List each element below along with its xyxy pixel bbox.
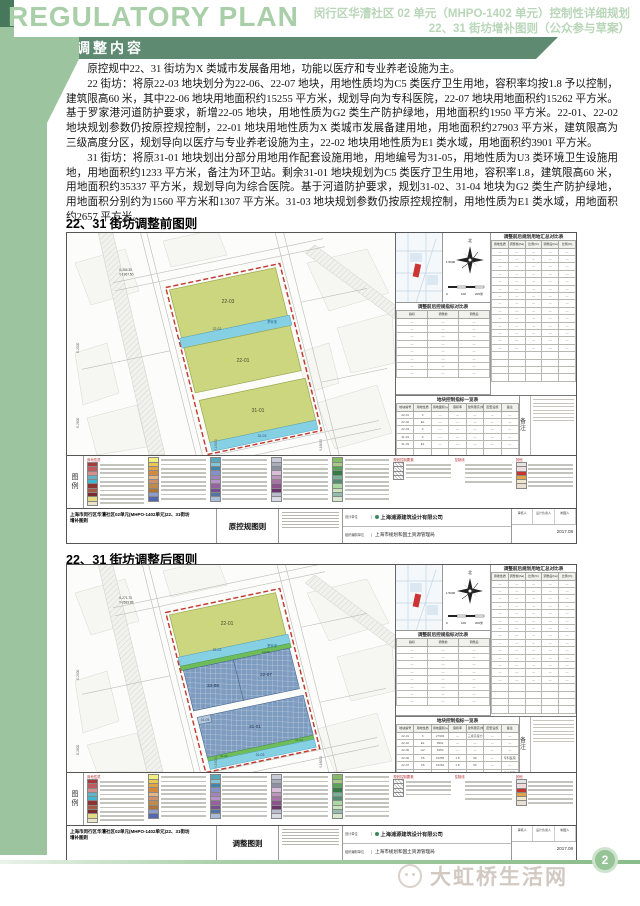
compass-box: 北 1:5000 — [443, 233, 490, 302]
legend-column: 用地性质 — [87, 458, 144, 506]
legend-column: 控制线 — [455, 775, 512, 823]
legend-column: 其他 — [516, 458, 573, 506]
label-parcel-e: 31-03 — [258, 434, 267, 438]
plan-map-before: 22-03 22-02 罗家港 22-01 31-01 31-03 X-264.… — [67, 233, 395, 455]
map-and-panel: 22-01 22-02 罗家港 22-05 22-06 22-07 31-01 … — [67, 565, 576, 772]
watermark-text: 大虹桥生活网 — [430, 861, 568, 891]
design-firm: 上海浦源建筑设计有限公司 — [372, 831, 511, 838]
legend-swatch-icon — [87, 501, 98, 506]
design-firm: 上海浦源建筑设计有限公司 — [372, 514, 511, 521]
legend-columns: 用地性质规划控制要素控制线其他 — [84, 773, 576, 825]
grid-tick: E-2500 — [76, 669, 80, 680]
org-name: 上海市规划和国土资源管理局 — [372, 849, 511, 855]
label-parcel-a: 22-01 — [221, 621, 234, 627]
org-unit-label: 组织编制单位 — [343, 533, 372, 537]
coord-label-y: Y-1967.50 — [119, 273, 134, 277]
label-parcel-k: 31-02 — [220, 754, 228, 758]
legend-column — [271, 458, 328, 506]
legend-column — [210, 458, 267, 506]
legend-swatch-icon — [271, 496, 282, 501]
river-name-label: 罗家港 — [267, 643, 277, 648]
titleblock-units: 设计单位 上海浦源建筑设计有限公司 组织编制单位 上海市规划和国土资源管理局 — [343, 509, 512, 543]
legend-columns: 用地性质规划控制要素控制线其他 — [84, 456, 576, 508]
north-arrow-icon: 北 1:5000 — [443, 233, 490, 303]
legend-swatch-icon — [393, 792, 404, 797]
label-parcel-j: 31-05 — [201, 718, 210, 722]
sheet-name: 原控规图则 — [217, 509, 279, 543]
compass-box: 北 1:5000 — [443, 565, 490, 630]
subtitle-line-2: 22、31 街坊增补图则（公众参与草案） — [314, 22, 630, 37]
notes-box: 备注 — [519, 717, 576, 772]
coord-label-y: Y-2683.89 — [119, 601, 134, 605]
svg-text:北: 北 — [468, 237, 472, 243]
notes-box: 备注 — [519, 396, 576, 455]
label-parcel-a: 22-03 — [222, 299, 235, 305]
coord-label-x: X-264.35 — [119, 268, 132, 272]
legend-label: 图例 — [67, 773, 84, 825]
titleblock-date: 2017.08 — [512, 842, 576, 861]
map-legend: 图例 用地性质规划控制要素控制线其他 — [67, 455, 576, 508]
locator-and-compass: 北 1:5000 — [396, 233, 490, 303]
mini-table: 调整前后规划用地汇总对比表用地性质调整前(ha)比例(%)调整后(ha)比例(%… — [491, 233, 576, 382]
scale-bar-icon: 0 100 200米 — [446, 286, 484, 296]
title-block: 上海市闵行区华漕社区02单元(MHPO-1402单元)22、31街坊 增补图则 … — [67, 508, 576, 543]
coord-label-x: X-271.70 — [119, 596, 132, 600]
grid-tick: Y-15000 — [214, 756, 218, 768]
design-unit-label: 设计单位 — [343, 832, 372, 836]
mini-table: 调整前后控规指标对比表指标调整前调整后—————————————————————… — [396, 303, 490, 378]
detail-table: 地块控制指标一览表地块编号用地性质用地面积(㎡)容积率建筑限高(米)配套设施备注… — [396, 717, 519, 772]
label-parcel-b: 22-02 — [213, 327, 222, 331]
heading-before-plan: 22、31 街坊调整前图则 — [66, 213, 197, 232]
legend-swatch-icon — [148, 813, 159, 818]
legend-column: 控制线 — [455, 458, 512, 506]
titleblock-roles: 审核人 设计负责人 制图人 2017.08 — [512, 509, 576, 543]
legend-column — [332, 775, 389, 823]
adjustment-text: 原控规中22、31 街坊为X 类城市发展备用地，功能以医疗和专业养老设施为主。 … — [66, 63, 618, 226]
notes-text-lines — [531, 396, 576, 455]
title-block: 上海市闵行区华漕社区02单元(MHPO-1402单元)22、31街坊 增补图则 … — [67, 825, 576, 860]
titleblock-notes — [279, 826, 343, 860]
titleblock-roles: 审核人 设计负责人 制图人 2017.08 — [512, 826, 576, 860]
mini-table: 调整前后规划用地汇总对比表用地性质调整前(ha)比例(%)调整后(ha)比例(%… — [491, 565, 576, 714]
titleblock-project: 上海市闵行区华漕社区02单元(MHPO-1402单元)22、31街坊 增补图则 — [67, 509, 217, 543]
figure-after-plan: 22-01 22-02 罗家港 22-05 22-06 22-07 31-01 … — [66, 564, 577, 861]
legend-swatch-icon — [87, 818, 98, 823]
notes-text-lines — [531, 717, 576, 772]
legend-column — [148, 458, 205, 506]
north-arrow-icon: 北 1:5000 — [443, 565, 490, 631]
summary-table: 调整前后规划用地汇总对比表用地性质调整前(ha)比例(%)调整后(ha)比例(%… — [490, 565, 576, 716]
subtitle-line-1: 闵行区华漕社区 02 单元（MHPO-1402 单元）控制性详细规划 — [314, 7, 630, 22]
page-number-badge: 2 — [592, 847, 618, 873]
detail-row: 地块控制指标一览表地块编号用地性质用地面积(㎡)容积率建筑限高(米)配套设施备注… — [396, 716, 576, 772]
legend-swatch-icon — [393, 475, 404, 480]
legend-swatch-icon — [148, 496, 159, 501]
grid-tick: Y-15000 — [214, 439, 218, 451]
info-panel: 北 1:5000 — [395, 233, 575, 455]
locator-map — [396, 233, 443, 302]
mini-table: 地块控制指标一览表地块编号用地性质用地面积(㎡)容积率建筑限高(米)配套设施备注… — [396, 717, 519, 772]
mini-table: 调整前后控规指标对比表指标调整前调整后—————————————————————… — [396, 631, 490, 706]
org-name: 上海市规划和国土资源管理局 — [372, 532, 511, 538]
grid-tick: Y-16000 — [319, 756, 323, 768]
label-parcel-c: 22-01 — [237, 358, 250, 364]
grid-tick: E-2600 — [76, 744, 80, 755]
label-parcel-g: 22-05 — [262, 650, 270, 654]
sheet-name: 调整图则 — [217, 826, 279, 860]
design-unit-label: 设计单位 — [343, 515, 372, 519]
svg-text:北: 北 — [468, 569, 472, 575]
map-legend: 图例 用地性质规划控制要素控制线其他 — [67, 772, 576, 825]
watermark-logo-icon — [398, 864, 422, 888]
paragraph-overview: 原控规中22、31 街坊为X 类城市发展备用地，功能以医疗和专业养老设施为主。 — [66, 63, 618, 78]
map-and-panel: 22-03 22-02 罗家港 22-01 31-01 31-03 X-264.… — [67, 233, 576, 455]
titleblock-notes — [279, 509, 343, 543]
detail-row: 地块控制指标一览表地块编号用地性质用地面积(㎡)容积率建筑限高(米)配套设施备注… — [396, 395, 576, 455]
legend-swatch-icon — [210, 496, 221, 501]
label-parcel-e: 31-03 — [256, 753, 265, 757]
river-name-label: 罗家港 — [267, 319, 277, 324]
section-banner: 调整内容 — [14, 37, 558, 59]
notes-label: 备注 — [520, 717, 531, 772]
legend-swatch-icon — [332, 496, 343, 501]
svg-text:0: 0 — [446, 621, 448, 625]
svg-text:200米: 200米 — [475, 620, 483, 625]
summary-table: 调整前后规划用地汇总对比表用地性质调整前(ha)比例(%)调整后(ha)比例(%… — [490, 233, 576, 395]
legend-swatch-icon — [271, 813, 282, 818]
page-title: REGULATORY PLAN — [8, 1, 299, 33]
titleblock-project: 上海市闵行区华漕社区02单元(MHPO-1402单元)22、31街坊 增补图则 — [67, 826, 217, 860]
plan-map-after: 22-01 22-02 罗家港 22-05 22-06 22-07 31-01 … — [67, 565, 395, 772]
legend-swatch-icon — [516, 800, 527, 805]
label-parcel-d: 31-01 — [252, 408, 265, 414]
svg-text:100: 100 — [461, 292, 466, 296]
compare-table: 调整前后控规指标对比表指标调整前调整后—————————————————————… — [396, 631, 490, 716]
svg-text:0: 0 — [446, 292, 448, 296]
watermark: 大虹桥生活网 — [398, 861, 568, 891]
legend-column: 规划控制要素 — [393, 775, 450, 823]
grid-tick: E-2500 — [76, 342, 80, 353]
info-panel: 北 1:5000 — [395, 565, 575, 772]
legend-swatch-icon — [332, 813, 343, 818]
figure-before-plan: 22-03 22-02 罗家港 22-01 31-01 31-03 X-264.… — [66, 232, 577, 544]
label-parcel-d: 31-01 — [249, 724, 261, 729]
locator-map-icon — [396, 233, 443, 302]
titleblock-units: 设计单位 上海浦源建筑设计有限公司 组织编制单位 上海市规划和国土资源管理局 — [343, 826, 512, 860]
svg-text:1:5000: 1:5000 — [446, 260, 456, 264]
mini-table: 地块控制指标一览表地块编号用地性质用地面积(㎡)容积率建筑限高(米)配套设施备注… — [396, 396, 519, 455]
label-parcel-l: 31-04 — [295, 738, 303, 742]
locator-map-icon — [396, 565, 443, 630]
legend-swatch-icon — [210, 813, 221, 818]
svg-text:1:5000: 1:5000 — [446, 591, 456, 595]
label-parcel-i: 22-07 — [260, 672, 272, 677]
legend-column — [210, 775, 267, 823]
legend-column — [148, 775, 205, 823]
grid-tick: E-2600 — [76, 417, 80, 428]
legend-column: 其他 — [516, 775, 573, 823]
grid-tick: Y-16000 — [319, 439, 323, 451]
label-parcel-h: 22-06 — [207, 683, 219, 688]
svg-text:100: 100 — [461, 621, 466, 625]
plan-subtitle: 闵行区华漕社区 02 单元（MHPO-1402 单元）控制性详细规划 22、31… — [314, 7, 630, 37]
legend-swatch-icon — [516, 483, 527, 488]
legend-label: 图例 — [67, 456, 84, 508]
svg-text:200米: 200米 — [475, 291, 483, 296]
locator-and-compass: 北 1:5000 — [396, 565, 490, 631]
legend-column — [332, 458, 389, 506]
firm-logo-icon — [375, 515, 379, 519]
legend-column: 用地性质 — [87, 775, 144, 823]
titleblock-date: 2017.08 — [512, 525, 576, 544]
scale-bar-icon: 0 100 200米 — [446, 615, 484, 625]
legend-column: 规划控制要素 — [393, 458, 450, 506]
legend-column — [271, 775, 328, 823]
firm-logo-icon — [375, 832, 379, 836]
paragraph-block-22: 22 街坊：将原22-03 地块划分为22-06、22-07 地块，用地性质均为… — [66, 78, 618, 152]
org-unit-label: 组织编制单位 — [343, 850, 372, 854]
label-parcel-b: 22-02 — [213, 648, 222, 652]
locator-map — [396, 565, 443, 630]
detail-table: 地块控制指标一览表地块编号用地性质用地面积(㎡)容积率建筑限高(米)配套设施备注… — [396, 396, 519, 455]
notes-label: 备注 — [520, 396, 531, 455]
document-page: REGULATORY PLAN 闵行区华漕社区 02 单元（MHPO-1402 … — [0, 0, 640, 906]
compare-table: 调整前后控规指标对比表指标调整前调整后—————————————————————… — [396, 303, 490, 395]
